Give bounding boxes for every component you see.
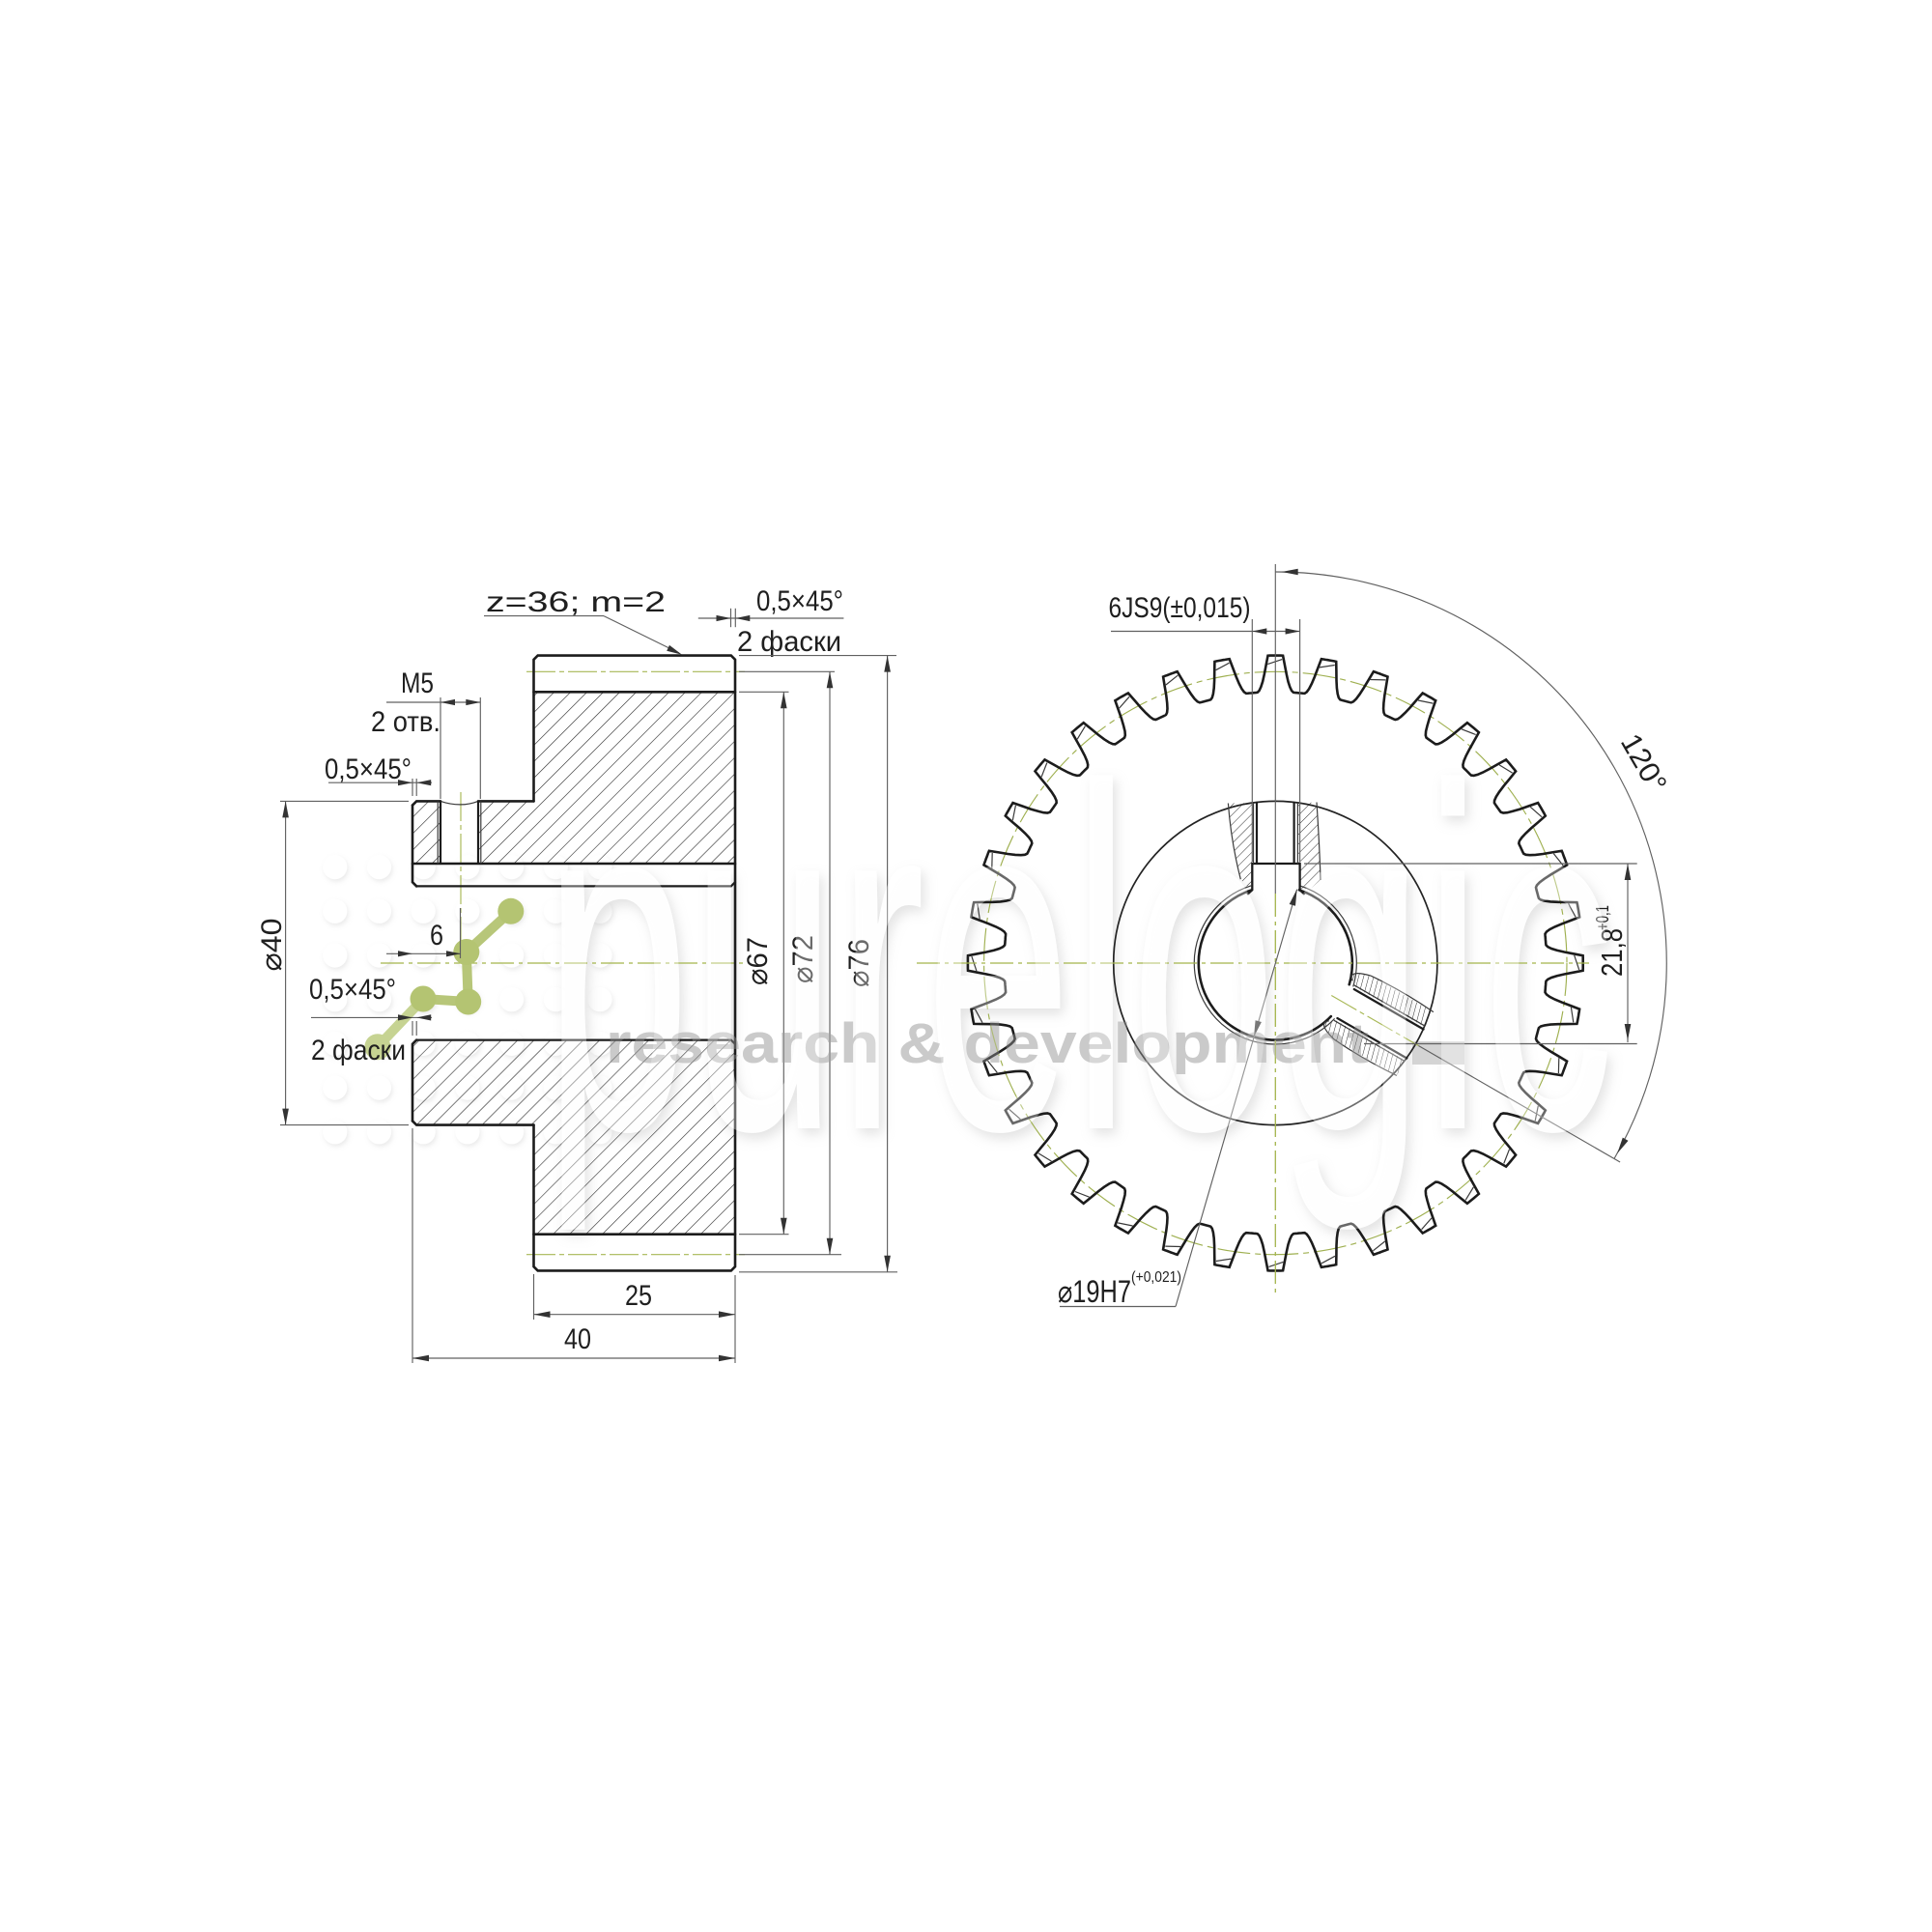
svg-text:z=36; m=2: z=36; m=2: [486, 586, 666, 618]
svg-text:0,5×45°: 0,5×45°: [309, 974, 396, 1006]
svg-text:purelogic: purelogic: [544, 688, 1614, 1235]
svg-text:(+0,021): (+0,021): [1131, 1269, 1181, 1286]
svg-text:6JS9(±0,015): 6JS9(±0,015): [1109, 592, 1251, 624]
svg-text:⌀19H7: ⌀19H7: [1058, 1274, 1131, 1309]
svg-text:research & development: research & development: [606, 1012, 1369, 1075]
svg-text:6: 6: [430, 920, 443, 952]
svg-text:40: 40: [564, 1323, 591, 1355]
svg-text:⌀40: ⌀40: [256, 919, 288, 972]
svg-text:2 фаски: 2 фаски: [311, 1035, 406, 1066]
svg-text:2 фаски: 2 фаски: [737, 626, 841, 658]
svg-text:M5: M5: [401, 668, 434, 699]
svg-text:25: 25: [625, 1280, 652, 1312]
svg-text:2 отв.: 2 отв.: [371, 706, 440, 738]
svg-text:0,5×45°: 0,5×45°: [756, 585, 843, 617]
